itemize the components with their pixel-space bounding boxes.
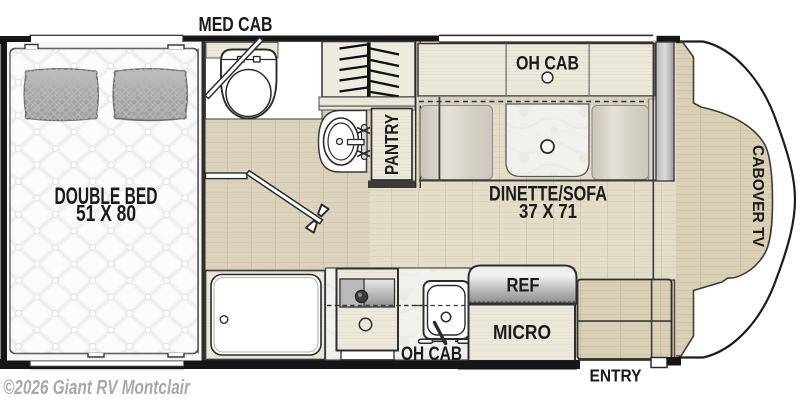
svg-text:OH CAB: OH CAB [401, 343, 462, 365]
svg-text:PANTRY: PANTRY [382, 114, 402, 175]
svg-text:37 X 71: 37 X 71 [519, 201, 577, 223]
svg-text:MED CAB: MED CAB [199, 13, 273, 36]
svg-text:OH CAB: OH CAB [516, 54, 579, 75]
svg-text:ENTRY: ENTRY [590, 366, 642, 386]
svg-text:MICRO: MICRO [493, 321, 551, 344]
svg-text:REF: REF [507, 276, 540, 297]
svg-text:©2026 Giant RV Montclair: ©2026 Giant RV Montclair [3, 377, 191, 399]
svg-text:CABOVER TV: CABOVER TV [749, 145, 766, 247]
svg-text:51 X 80: 51 X 80 [76, 200, 136, 226]
